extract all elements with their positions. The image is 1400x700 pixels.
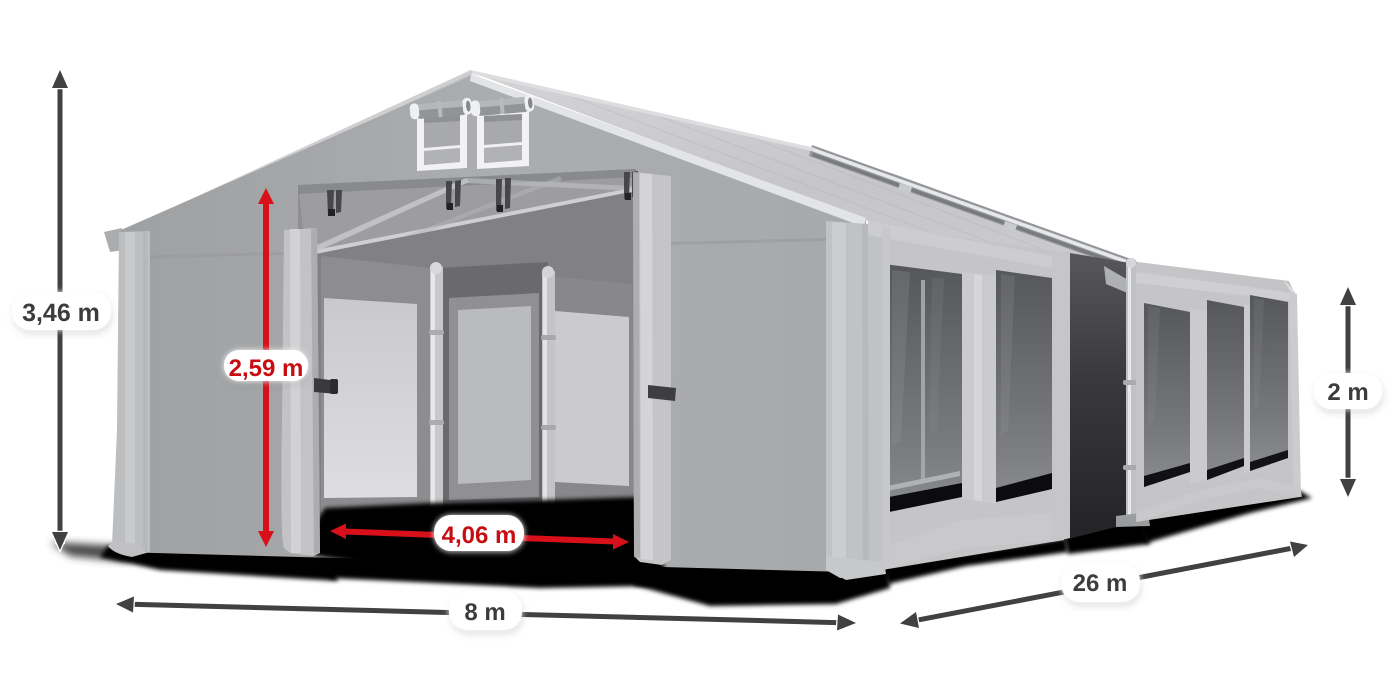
svg-text:2 m: 2 m (1327, 379, 1368, 406)
svg-text:2,59 m: 2,59 m (229, 355, 304, 382)
svg-text:4,06 m: 4,06 m (442, 522, 517, 549)
svg-text:8 m: 8 m (464, 599, 505, 626)
svg-text:26 m: 26 m (1073, 570, 1128, 597)
svg-text:3,46 m: 3,46 m (22, 299, 100, 327)
